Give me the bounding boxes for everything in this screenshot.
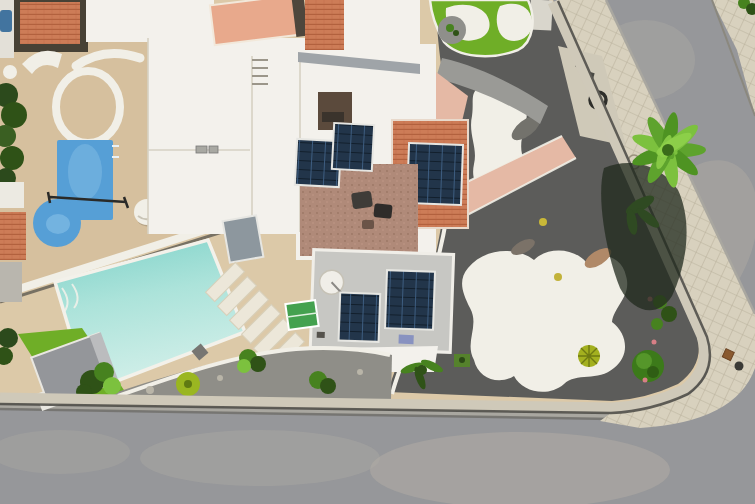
cactus-ribs [578,345,600,367]
neighbor-roof-terracotta [12,0,88,52]
terracotta-roof [20,2,80,44]
palm-base [417,365,427,375]
round-bush [632,350,664,382]
aerial-photo-canvas [0,0,755,504]
yellow-ball-plant [539,218,547,226]
solar-water-heater [223,215,264,262]
palm-core [662,144,674,156]
flower [643,378,648,383]
bush-shade [647,366,659,378]
aerial-photo [0,0,755,504]
gable-roof [344,0,420,58]
ac-unit [196,146,207,153]
stone [146,386,154,394]
white-parasol [3,65,17,79]
planter-sprout [446,24,454,32]
left-gray-patch [0,262,22,302]
courtyard-sofa [322,112,344,122]
cactus-ball [578,345,600,367]
bush [320,378,336,394]
bush [237,359,251,373]
blue-roof-item [398,335,413,345]
stone [217,375,223,381]
terrace-table [362,220,374,229]
left-terracotta-roof [0,212,26,260]
stone [357,369,363,375]
flower [652,340,657,345]
plant [651,318,663,330]
white-garden-path [462,250,627,391]
solar-panel-array [339,293,381,342]
road-wear-patch [140,430,380,486]
terracotta-strip-roof [305,0,345,50]
water-reflection [68,144,102,200]
water-reflection [46,214,70,234]
roof-vent [317,332,325,338]
planter-sprout [453,30,459,36]
bush [103,377,121,395]
terrace-chair [373,203,392,219]
plant [661,306,677,322]
bollard [735,362,744,371]
left-pool-glimpse [0,10,12,32]
foliage [0,146,24,170]
mini-green-table [285,300,318,330]
terrace-chair [351,191,373,210]
solar-panel-array [385,270,435,330]
foliage [1,102,27,128]
solar-panel-array [332,123,374,171]
succulent-core [184,380,192,388]
bush-highlight [636,353,652,369]
ac-unit [209,146,218,153]
bush [250,356,266,372]
gray-roof-solar [310,250,453,353]
left-white-band [0,182,24,208]
rooftop-units [196,146,218,153]
white-roof-band [86,0,214,42]
property-villa [0,0,705,411]
yellow-ball-plant [554,273,562,281]
utility-dot [459,357,465,363]
